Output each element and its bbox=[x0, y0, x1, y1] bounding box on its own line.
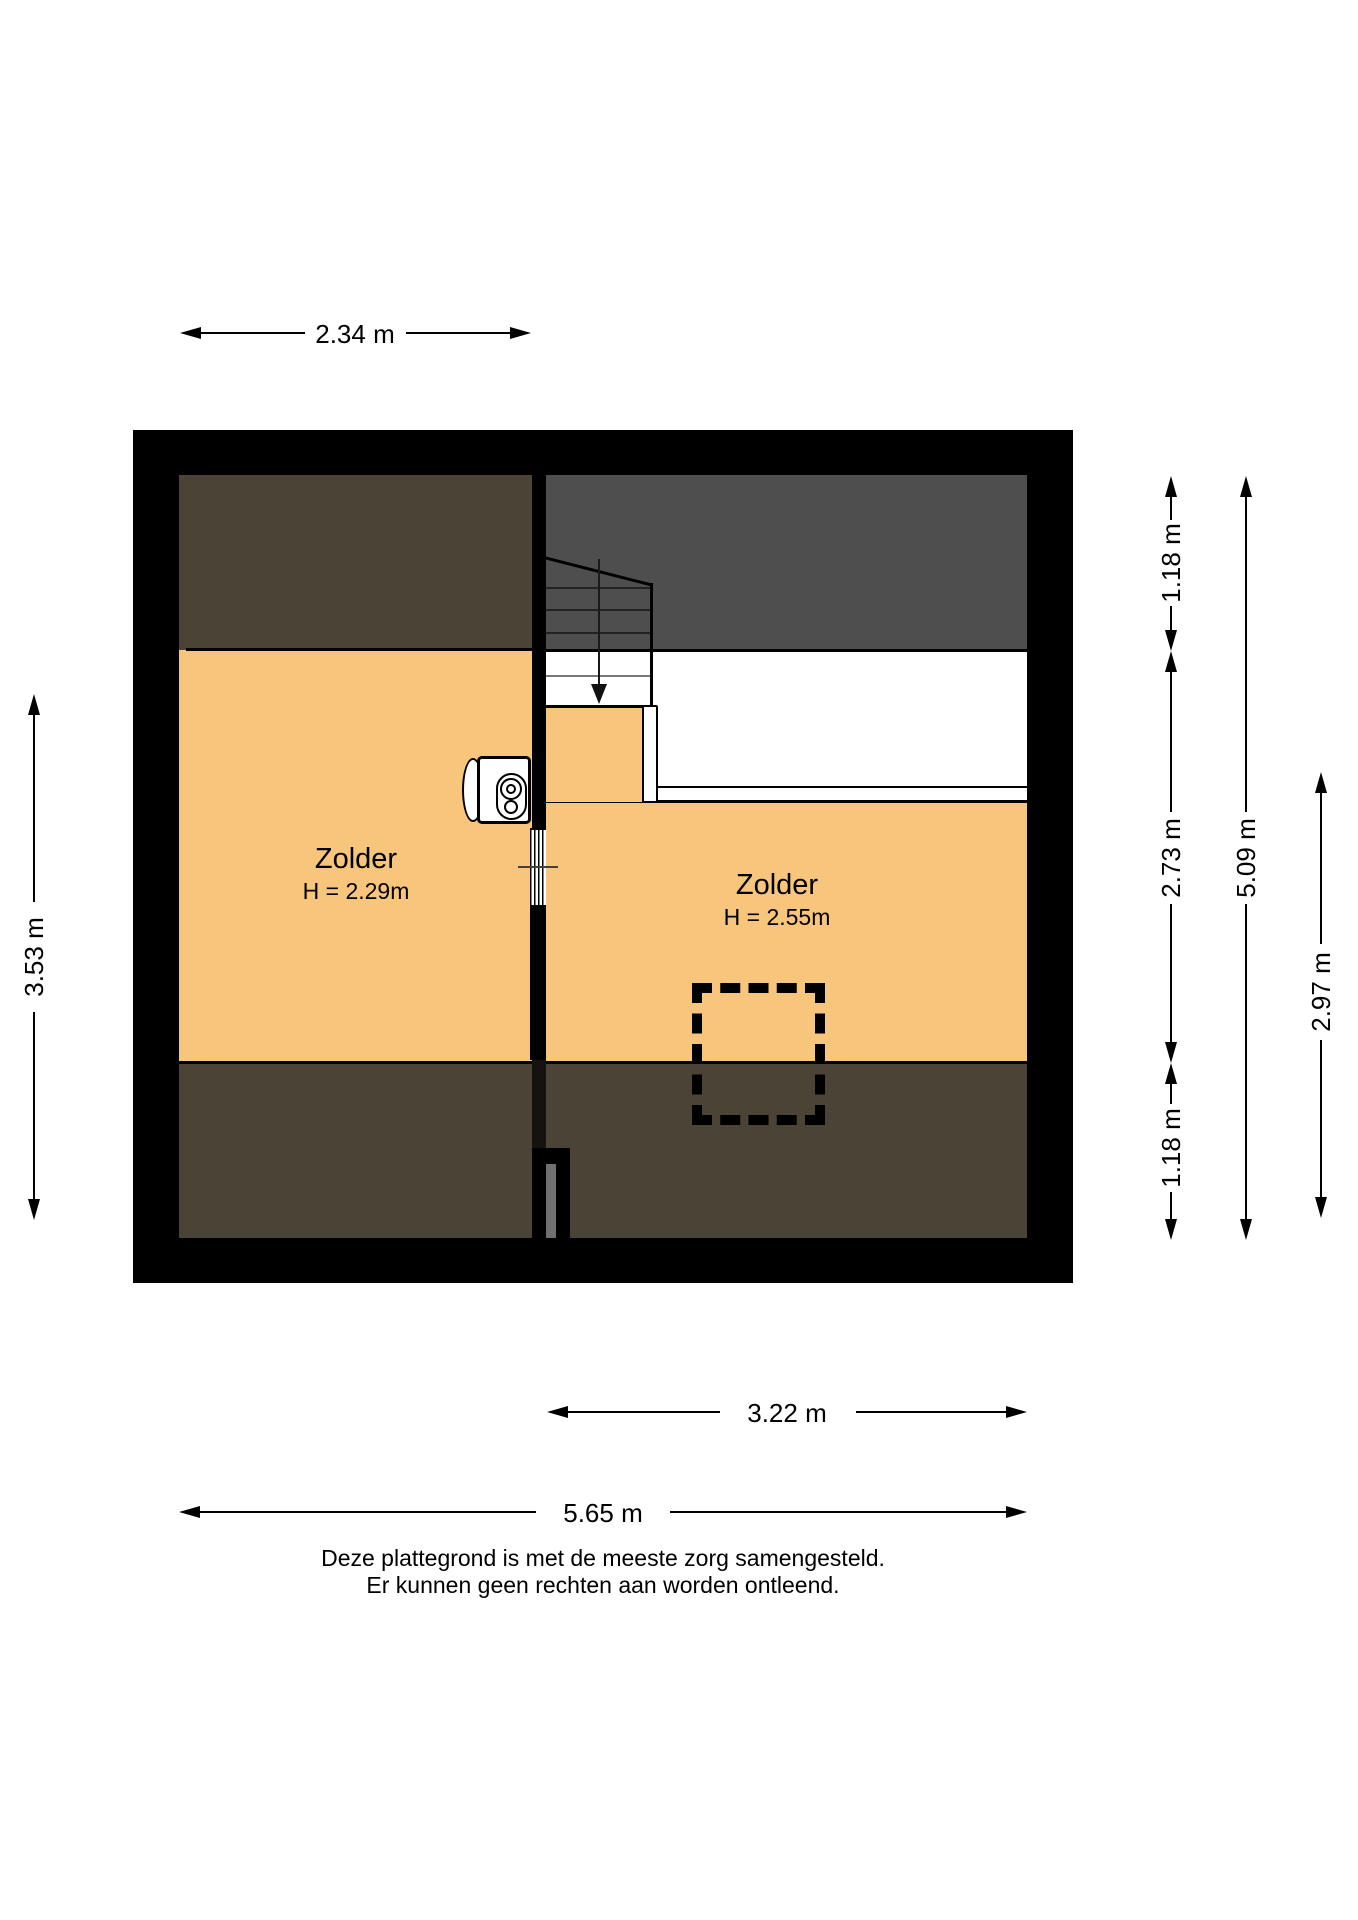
roof-slope-left-edge bbox=[186, 648, 533, 651]
stairs-direction-arrow-icon bbox=[591, 684, 607, 704]
dim-line bbox=[568, 1411, 720, 1413]
chimney-duct bbox=[546, 1164, 556, 1240]
boiler-dial-inner bbox=[506, 784, 516, 794]
arrowhead-down-icon bbox=[1315, 1197, 1327, 1218]
dim-bottom-room: 3.22 m bbox=[727, 1398, 847, 1429]
stairs-direction-line bbox=[598, 559, 600, 687]
dim-line bbox=[1170, 606, 1172, 630]
arrowhead-left-icon bbox=[180, 327, 201, 339]
roof-slope-bottom-edge bbox=[179, 1061, 1028, 1064]
arrowhead-down-icon bbox=[1165, 1219, 1177, 1240]
dim-line bbox=[1170, 1192, 1172, 1219]
arrowhead-up-icon bbox=[1165, 1063, 1177, 1084]
dim-line bbox=[33, 714, 35, 902]
dim-right-seg-top: 1.18 m bbox=[1158, 503, 1184, 623]
wall-bottom bbox=[133, 1238, 1073, 1283]
disclaimer-line1: Deze plattegrond is met de meeste zorg s… bbox=[203, 1545, 1003, 1572]
arrowhead-left-icon bbox=[179, 1506, 200, 1518]
dim-line bbox=[1320, 792, 1322, 944]
room-name: Zolder bbox=[256, 843, 456, 875]
room-label-left: Zolder H = 2.29m bbox=[256, 843, 456, 904]
wall-left bbox=[133, 430, 179, 1283]
arrowhead-up-icon bbox=[1240, 476, 1252, 497]
dim-right-room: 2.97 m bbox=[1308, 932, 1334, 1052]
roof-slope-bottom bbox=[179, 1063, 1028, 1240]
divider-wall-lower bbox=[530, 907, 546, 1060]
room-height: H = 2.55m bbox=[677, 904, 877, 930]
disclaimer: Deze plattegrond is met de meeste zorg s… bbox=[203, 1545, 1003, 1599]
arrowhead-up-icon bbox=[1315, 772, 1327, 793]
room-name: Zolder bbox=[677, 869, 877, 901]
door-swing-tick bbox=[518, 866, 558, 868]
arrowhead-up-icon bbox=[28, 694, 40, 715]
arrowhead-up-icon bbox=[1165, 476, 1177, 497]
dim-line bbox=[1170, 672, 1172, 812]
room-label-right: Zolder H = 2.55m bbox=[677, 869, 877, 930]
dim-line bbox=[1320, 1040, 1322, 1197]
dim-right-total: 5.09 m bbox=[1233, 798, 1259, 918]
knee-wall-line bbox=[658, 786, 1028, 788]
dim-bottom-total: 5.65 m bbox=[543, 1498, 663, 1529]
roof-slope-right bbox=[546, 475, 1028, 650]
dim-line bbox=[670, 1511, 1006, 1513]
arrowhead-right-icon bbox=[1006, 1506, 1027, 1518]
dim-right-seg-mid: 2.73 m bbox=[1158, 798, 1184, 918]
arrowhead-up-icon bbox=[1165, 651, 1177, 672]
dim-line bbox=[1245, 904, 1247, 1219]
arrowhead-right-icon bbox=[510, 327, 531, 339]
floorplan-canvas: Zolder H = 2.29m Zolder H = 2.55m 2.34 m… bbox=[0, 0, 1358, 1920]
arrowhead-right-icon bbox=[1006, 1406, 1027, 1418]
boiler-knob bbox=[504, 800, 518, 814]
dim-top-width: 2.34 m bbox=[295, 319, 415, 350]
arrowhead-down-icon bbox=[1165, 630, 1177, 651]
dim-line bbox=[201, 332, 305, 334]
dim-left-height: 3.53 m bbox=[21, 897, 47, 1017]
dim-line bbox=[856, 1411, 1006, 1413]
dim-line bbox=[33, 1012, 35, 1200]
divider-wall-in-roof bbox=[532, 1060, 546, 1152]
stair-railing bbox=[642, 705, 658, 803]
stair-landing bbox=[546, 707, 643, 802]
divider-wall-upper bbox=[532, 475, 546, 828]
disclaimer-line2: Er kunnen geen rechten aan worden ontlee… bbox=[203, 1572, 1003, 1599]
dim-right-seg-bottom: 1.18 m bbox=[1158, 1088, 1184, 1208]
roof-slope-left bbox=[179, 475, 533, 650]
wall-right bbox=[1027, 430, 1073, 1283]
stairs-side-line bbox=[650, 583, 653, 707]
dim-line bbox=[200, 1511, 536, 1513]
dim-line bbox=[1170, 904, 1172, 1042]
arrowhead-left-icon bbox=[547, 1406, 568, 1418]
arrowhead-down-icon bbox=[1165, 1042, 1177, 1063]
wall-top bbox=[133, 430, 1073, 475]
dim-line bbox=[406, 332, 510, 334]
stair-landing-edge bbox=[545, 705, 650, 708]
room-height: H = 2.29m bbox=[256, 878, 456, 904]
floor-opening-dashed bbox=[692, 983, 825, 1125]
arrowhead-down-icon bbox=[28, 1199, 40, 1220]
dim-line bbox=[1245, 496, 1247, 812]
arrowhead-down-icon bbox=[1240, 1219, 1252, 1240]
